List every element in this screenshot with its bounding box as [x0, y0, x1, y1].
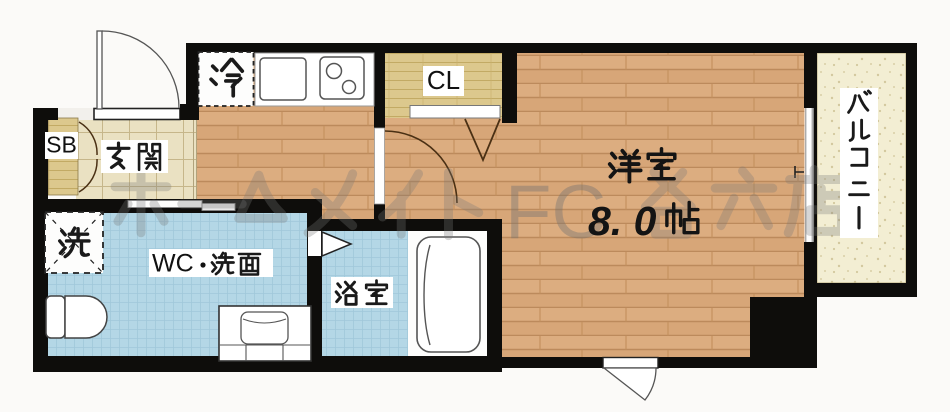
svg-text:8. 0: 8. 0 [588, 198, 657, 244]
svg-text:CL: CL [427, 65, 460, 95]
svg-text:SB: SB [46, 132, 77, 158]
svg-text:WC: WC [152, 250, 194, 278]
